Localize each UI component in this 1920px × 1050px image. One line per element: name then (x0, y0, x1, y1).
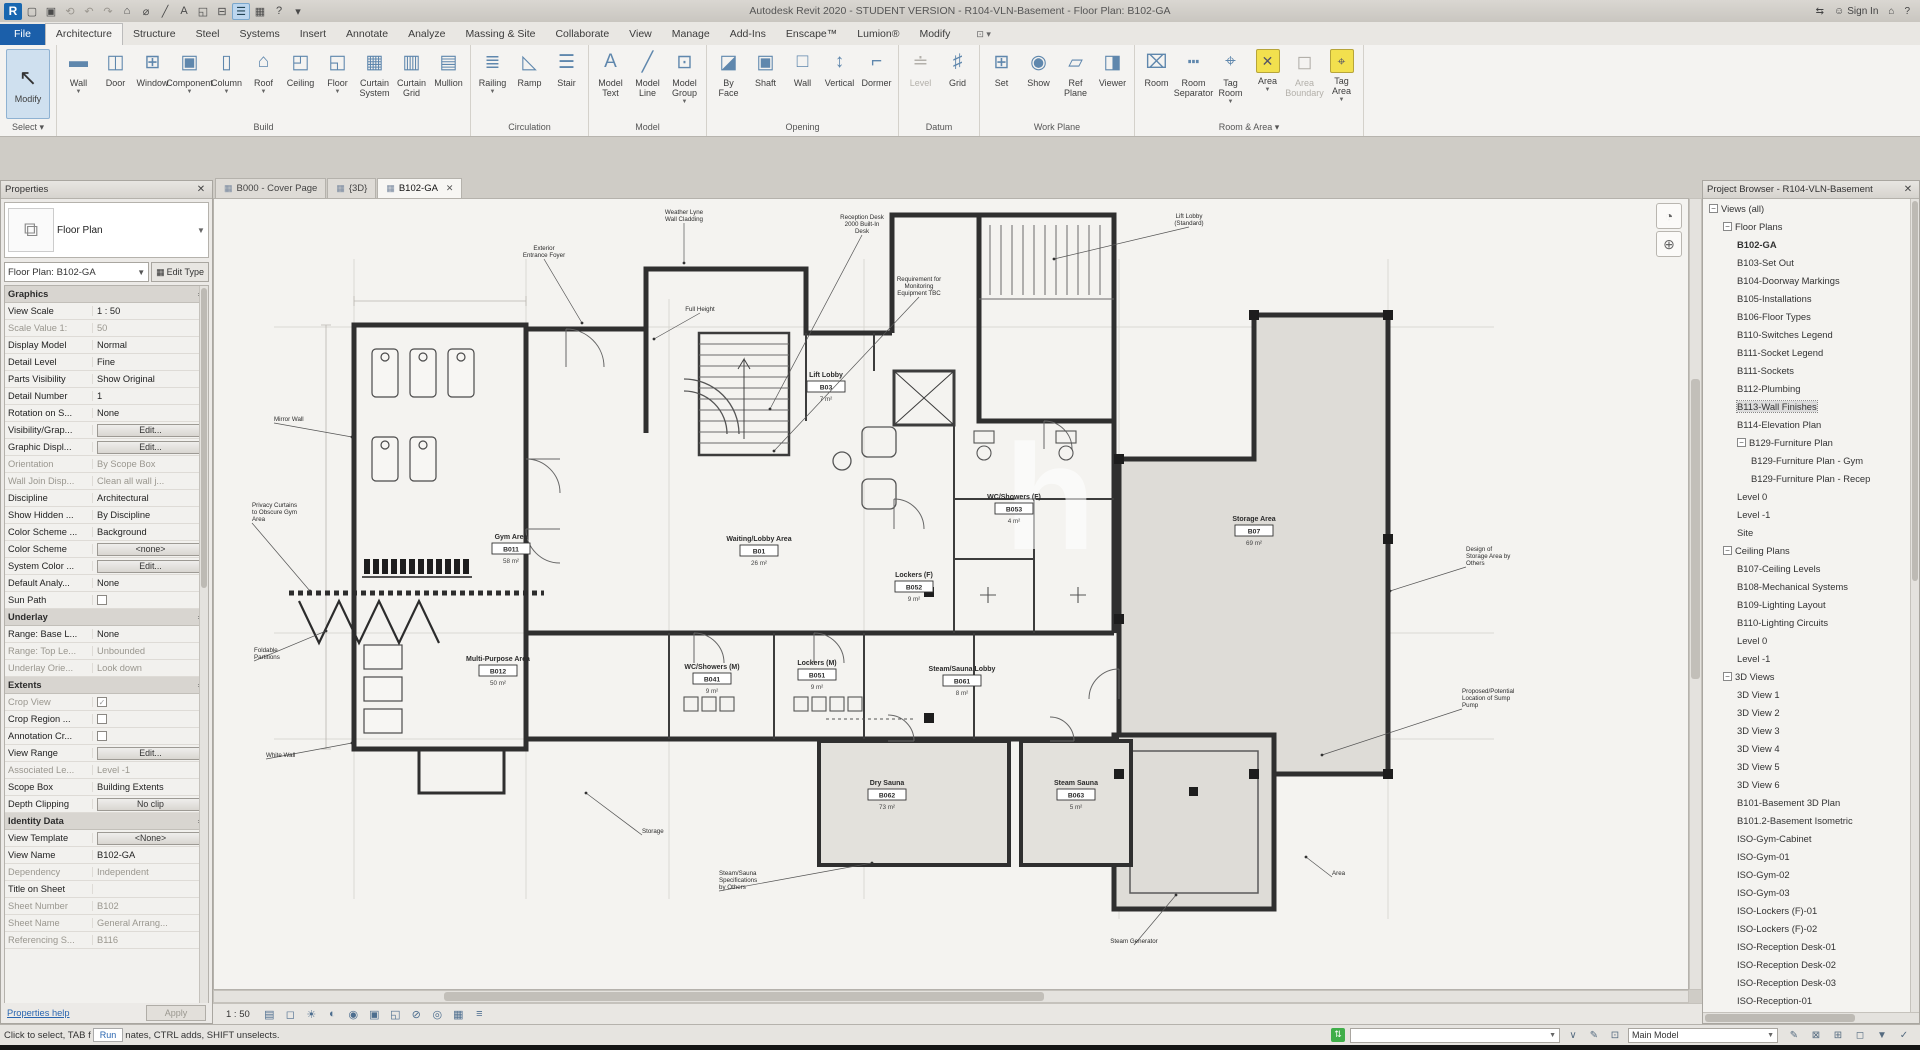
modify-button[interactable]: ↖Modify (6, 49, 50, 119)
show-work-plane-button[interactable]: ◉Show (1020, 47, 1057, 117)
property-row: Sheet NumberB102 (5, 898, 208, 915)
tree-item[interactable]: B101.2-Basement Isometric (1703, 811, 1919, 829)
tab-massing-site[interactable]: Massing & Site (455, 24, 545, 45)
tree-item[interactable]: ISO-Reception Desk-02 (1703, 955, 1919, 973)
window-icon: ⊞ (140, 49, 166, 75)
property-label: Scope Box (5, 782, 93, 792)
tree-item[interactable]: 3D View 1 (1703, 685, 1919, 703)
display-constraints-icon[interactable]: ◻ (1852, 1030, 1868, 1041)
editable-only-icon[interactable]: ✎ (1586, 1030, 1602, 1041)
property-value[interactable]: Architectural (93, 493, 208, 503)
property-row: Color Scheme ...Background (5, 524, 208, 541)
press-drag-icon[interactable]: ⊞ (1830, 1030, 1846, 1041)
grid-button[interactable]: ♯Grid (939, 47, 976, 117)
tree-item[interactable]: B114-Elevation Plan (1703, 415, 1919, 433)
ribbon-group-opening: ◪By Face▣Shaft□Wall↕Vertical⌐DormerOpeni… (707, 45, 899, 136)
property-value[interactable]: No clip (93, 797, 208, 812)
editable-only-icon[interactable]: ✎ (1786, 1030, 1802, 1041)
redo-icon[interactable]: ↷ (99, 3, 117, 20)
browser-scrollbar[interactable] (1910, 199, 1919, 1012)
tag-room-button[interactable]: ⌖Tag Room▼ (1212, 47, 1249, 117)
ribbon-group-work-plane: ⊞Set◉Show▱Ref Plane◨ViewerWork Plane (980, 45, 1135, 136)
measure-icon[interactable]: ⌀ (137, 3, 155, 20)
visual-style-icon[interactable]: ◻ (282, 1006, 299, 1022)
property-label: Sheet Number (5, 901, 93, 911)
switch-windows-icon[interactable]: ? (270, 3, 288, 20)
tab-collaborate[interactable]: Collaborate (545, 24, 619, 45)
edit-type-icon: ▦ (156, 267, 165, 278)
aligned-dimension-icon[interactable]: ╱ (156, 3, 174, 20)
annotation-text: Partitions (254, 654, 280, 661)
tree-item[interactable]: B105-Installations (1703, 289, 1919, 307)
sun-path-icon[interactable]: ☀ (303, 1006, 320, 1022)
property-row: Visibility/Grap...Edit... (5, 422, 208, 439)
chevron-down-icon: ▼ (335, 89, 341, 95)
collapse-icon[interactable]: − (1723, 672, 1732, 681)
rendering-icon[interactable]: ◉ (345, 1006, 362, 1022)
navigation-wheel-icon[interactable]: ◔ (1656, 203, 1682, 229)
ceiling-button[interactable]: ◰Ceiling (282, 47, 319, 117)
column-icon: ▯ (214, 49, 240, 75)
svg-text:Steam Sauna: Steam Sauna (1054, 780, 1098, 787)
tree-item[interactable]: B129-Furniture Plan - Recep (1703, 469, 1919, 487)
tree-item[interactable]: Level 0 (1703, 487, 1919, 505)
close-inactive-icon[interactable]: ▦ (251, 3, 269, 20)
property-value[interactable]: 1 : 50 (93, 306, 208, 316)
property-value[interactable]: Edit... (93, 746, 208, 761)
property-label: Orientation (5, 459, 93, 469)
property-value[interactable]: B102 (93, 901, 208, 911)
property-value[interactable]: Look down (93, 663, 208, 673)
chevron-down-icon: ▼ (261, 89, 267, 95)
type-name: Floor Plan (57, 225, 194, 236)
tree-item[interactable]: ISO-Gym-03 (1703, 883, 1919, 901)
property-label: Range: Base L... (5, 629, 93, 639)
tab-manage[interactable]: Manage (662, 24, 720, 45)
tree-item[interactable]: B110-Lighting Circuits (1703, 613, 1919, 631)
default-3d-view-icon[interactable]: ◱ (194, 3, 212, 20)
property-value[interactable]: By Scope Box (93, 459, 208, 469)
floor-plan-icon: ▦ (224, 183, 233, 194)
property-checkbox[interactable] (97, 731, 107, 741)
property-value[interactable]: 50 (93, 323, 208, 333)
view-tab-b000-cover-page[interactable]: ▦B000 - Cover Page (215, 178, 326, 198)
area-boundary-icon: ◻ (1292, 49, 1318, 75)
tree-item[interactable]: B112-Plumbing (1703, 379, 1919, 397)
opening-by-face-button[interactable]: ◪By Face (710, 47, 747, 117)
status-bar: Click to select, TAB f Run nates, CTRL a… (0, 1024, 1920, 1045)
worksets-status-icon[interactable]: ⇅ (1331, 1028, 1345, 1042)
worksharing-display-icon[interactable]: ▦ (450, 1006, 467, 1022)
stair-button[interactable]: ☰Stair (548, 47, 585, 117)
tree-item[interactable]: ISO-Gym-01 (1703, 847, 1919, 865)
room-separator-button[interactable]: ┅Room Separator (1175, 47, 1212, 117)
property-value[interactable]: Level -1 (93, 765, 208, 775)
section-header-graphics[interactable]: Graphics≙ (5, 286, 208, 303)
apply-button[interactable]: Apply (146, 1005, 206, 1021)
curtain-grid-button[interactable]: ▥Curtain Grid (393, 47, 430, 117)
tree-item[interactable]: 3D View 3 (1703, 721, 1919, 739)
set-work-plane-button[interactable]: ⊞Set (983, 47, 1020, 117)
tree-item[interactable]: −Views (all) (1703, 199, 1919, 217)
tree-item[interactable]: Level -1 (1703, 505, 1919, 523)
scale-button[interactable]: 1 : 50 (219, 1007, 257, 1022)
sync-icon[interactable]: ⟲ (61, 3, 79, 20)
properties-scrollbar[interactable] (199, 286, 208, 1003)
svg-text:B061: B061 (954, 679, 970, 686)
tab-view[interactable]: View (619, 24, 662, 45)
chevron-down-icon[interactable]: ▼ (194, 226, 208, 235)
undo-icon[interactable]: ↶ (80, 3, 98, 20)
tree-item[interactable]: B102-GA (1703, 235, 1919, 253)
edit-type-button[interactable]: ▦ Edit Type (151, 262, 209, 282)
svg-text:7 m²: 7 m² (820, 396, 833, 403)
exchange-icon[interactable]: ⇆ (1816, 6, 1824, 17)
railing-button[interactable]: ≣Railing▼ (474, 47, 511, 117)
tree-item[interactable]: B111-Socket Legend (1703, 343, 1919, 361)
ramp-button[interactable]: ◺Ramp (511, 47, 548, 117)
group-caption: Build (57, 120, 470, 136)
property-value[interactable]: Show Original (93, 374, 208, 384)
tag-area-button[interactable]: ⌖Tag Area▼ (1323, 47, 1360, 117)
wall-button[interactable]: ▬Wall▼ (60, 47, 97, 117)
property-value[interactable]: Building Extents (93, 782, 208, 792)
tree-item[interactable]: B110-Switches Legend (1703, 325, 1919, 343)
roof-button[interactable]: ⌂Roof▼ (245, 47, 282, 117)
property-label: View Name (5, 850, 93, 860)
room-separator-icon: ┅ (1181, 49, 1207, 75)
set-work-plane-icon: ⊞ (989, 49, 1015, 75)
tab-architecture[interactable]: Architecture (45, 23, 123, 45)
room-button[interactable]: ⌧Room (1138, 47, 1175, 117)
shadows-icon[interactable]: ◐ (324, 1006, 341, 1022)
type-selector[interactable]: ⧉ Floor Plan ▼ (4, 202, 209, 258)
curtain-grid-icon: ▥ (399, 49, 425, 75)
property-value[interactable]: ✓ (93, 697, 208, 707)
tree-item[interactable]: ISO-Reception-01 (1703, 991, 1919, 1009)
design-options-icon[interactable]: ⊡ (1607, 1030, 1623, 1041)
thin-lines-icon[interactable]: ☰ (232, 3, 250, 20)
tree-item[interactable]: Level 0 (1703, 631, 1919, 649)
collapse-icon[interactable]: − (1709, 204, 1718, 213)
svg-text:5 m²: 5 m² (1070, 804, 1083, 811)
property-value[interactable]: <none> (93, 542, 208, 557)
component-icon: ▣ (177, 49, 203, 75)
tree-item[interactable]: 3D View 4 (1703, 739, 1919, 757)
collapse-icon[interactable]: − (1723, 222, 1732, 231)
property-row: Associated Le...Level -1 (5, 762, 208, 779)
property-value[interactable]: None (93, 408, 208, 418)
tree-item[interactable]: ISO-Lockers (F)-01 (1703, 901, 1919, 919)
property-row: Referencing S...B116 (5, 932, 208, 949)
tree-item[interactable]: B103-Set Out (1703, 253, 1919, 271)
property-value[interactable]: 1 (93, 391, 208, 401)
property-row: DisciplineArchitectural (5, 490, 208, 507)
annotation-text: Design of (1466, 546, 1492, 553)
exclude-options-icon[interactable]: ⊠ (1808, 1030, 1824, 1041)
property-value[interactable]: General Arrang... (93, 918, 208, 928)
tree-item[interactable]: ISO-Gym-02 (1703, 865, 1919, 883)
properties-help-link[interactable]: Properties help (7, 1008, 70, 1018)
model-line-icon: ╱ (635, 49, 661, 75)
property-value[interactable] (93, 714, 208, 724)
property-row: Wall Join Disp...Clean all wall j... (5, 473, 208, 490)
print-icon[interactable]: ⌂ (118, 3, 136, 20)
floor-plan[interactable]: h Gym AreaB01158 m²Multi-Purpose AreaB01… (214, 199, 1689, 990)
property-edit-button[interactable]: <none> (97, 543, 204, 556)
close-icon[interactable]: ✕ (194, 184, 208, 195)
tree-item[interactable]: −Ceiling Plans (1703, 541, 1919, 559)
property-row: Graphic Displ...Edit... (5, 439, 208, 456)
property-value[interactable]: Edit... (93, 423, 208, 438)
mullion-button[interactable]: ▤Mullion (430, 47, 467, 117)
floor-button[interactable]: ◱Floor▼ (319, 47, 356, 117)
property-label: Visibility/Grap... (5, 425, 93, 435)
model-text-button[interactable]: AModel Text (592, 47, 629, 117)
customize-qat-icon[interactable]: ▾ (289, 3, 307, 20)
property-value[interactable]: B116 (93, 935, 208, 945)
property-row: OrientationBy Scope Box (5, 456, 208, 473)
property-row: Rotation on S...None (5, 405, 208, 422)
tag-room-icon: ⌖ (1218, 49, 1244, 75)
property-edit-button[interactable]: <None> (97, 832, 204, 845)
tab-lumion-[interactable]: Lumion® (847, 24, 909, 45)
tab-modify[interactable]: Modify (909, 24, 960, 45)
svg-text:Steam/Sauna Lobby: Steam/Sauna Lobby (929, 666, 996, 673)
tree-item[interactable]: −Floor Plans (1703, 217, 1919, 235)
tab-add-ins[interactable]: Add-Ins (720, 24, 776, 45)
view-control-bar: 1 : 50 ▤◻☀◐◉▣◱⊘◎▦≡ (213, 1003, 1702, 1024)
edit-type-label: Edit Type (167, 267, 204, 277)
property-value[interactable]: B102-GA (93, 850, 208, 860)
reveal-hidden-icon[interactable]: ◎ (429, 1006, 446, 1022)
door-button[interactable]: ◫Door (97, 47, 134, 117)
annotation-text: Full Height (685, 306, 715, 313)
canvas-horizontal-scrollbar[interactable] (213, 990, 1689, 1003)
property-checkbox[interactable] (97, 595, 107, 605)
property-value[interactable] (93, 595, 208, 605)
property-value[interactable]: <None> (93, 831, 208, 846)
select-caption[interactable]: Select ▾ (0, 120, 56, 136)
chevron-down-icon: ▼ (1339, 97, 1345, 103)
curtain-system-button[interactable]: ▦Curtain System (356, 47, 393, 117)
property-value[interactable]: Unbounded (93, 646, 208, 656)
tree-item[interactable]: 3D View 2 (1703, 703, 1919, 721)
close-icon[interactable]: ✕ (446, 183, 454, 194)
tree-item[interactable]: B106-Floor Types (1703, 307, 1919, 325)
tree-item[interactable]: Level -1 (1703, 649, 1919, 667)
property-label: View Template (5, 833, 93, 843)
run-badge: Run (93, 1028, 124, 1042)
property-value[interactable]: Independent (93, 867, 208, 877)
property-label: System Color ... (5, 561, 93, 571)
property-value[interactable]: Edit... (93, 559, 208, 574)
property-value[interactable] (93, 731, 208, 741)
section-header-identity-data[interactable]: Identity Data≙ (5, 813, 208, 830)
help-icon[interactable]: ? (1904, 6, 1910, 17)
tree-item[interactable]: ISO-Reception Desk-03 (1703, 973, 1919, 991)
tab-file[interactable]: File (0, 24, 45, 45)
save-icon[interactable]: ▣ (42, 3, 60, 20)
tree-item[interactable]: B111-Sockets (1703, 361, 1919, 379)
tree-item[interactable]: B108-Mechanical Systems (1703, 577, 1919, 595)
view-tab--3d-[interactable]: ▦{3D} (327, 178, 376, 198)
property-label: Wall Join Disp... (5, 476, 93, 486)
model-group-icon: ⊡ (672, 49, 698, 75)
chevron-down-icon: ▼ (187, 89, 193, 95)
column-button[interactable]: ▯Column▼ (208, 47, 245, 117)
annotation-text: Area (252, 516, 266, 523)
model-line-button[interactable]: ╱Model Line (629, 47, 666, 117)
property-row: Crop View✓ (5, 694, 208, 711)
text-icon[interactable]: A (175, 3, 193, 20)
select-toggle-icon[interactable]: ✓ (1896, 1030, 1912, 1041)
view-tab-b102-ga[interactable]: ▦B102-GA✕ (377, 178, 462, 198)
property-checkbox[interactable]: ✓ (97, 697, 107, 707)
tree-item[interactable]: B101-Basement 3D Plan (1703, 793, 1919, 811)
constraints-icon[interactable]: ≡ (471, 1006, 488, 1022)
tree-item[interactable]: B109-Lighting Layout (1703, 595, 1919, 613)
chevron-down-icon: ▼ (224, 89, 230, 95)
viewer-button[interactable]: ◨Viewer (1094, 47, 1131, 117)
tree-item[interactable]: B107-Ceiling Levels (1703, 559, 1919, 577)
tab-enscape-[interactable]: Enscape™ (776, 24, 847, 45)
ribbon-group-build: ▬Wall▼◫Door⊞Window▣Component▼▯Column▼⌂Ro… (57, 45, 471, 136)
tree-item[interactable]: B129-Furniture Plan - Gym (1703, 451, 1919, 469)
tab-steel[interactable]: Steel (186, 24, 230, 45)
section-icon[interactable]: ⊟ (213, 3, 231, 20)
property-row: Show Hidden ...By Discipline (5, 507, 208, 524)
tree-item[interactable]: Site (1703, 523, 1919, 541)
tab-annotate[interactable]: Annotate (336, 24, 398, 45)
instance-selector-label: Floor Plan: B102-GA (8, 267, 96, 278)
project-browser-header[interactable]: Project Browser - R104-VLN-Basement ✕ (1703, 181, 1919, 199)
tab-structure[interactable]: Structure (123, 24, 186, 45)
crop-region-icon[interactable]: ◱ (387, 1006, 404, 1022)
vertical-opening-button[interactable]: ↕Vertical (821, 47, 858, 117)
open-icon[interactable]: ▢ (23, 3, 41, 20)
worksets-dialog-icon[interactable]: ∨ (1565, 1030, 1581, 1041)
section-header-extents[interactable]: Extents≙ (5, 677, 208, 694)
annotation-text: Proposed/Potential (1462, 688, 1514, 695)
svg-text:9 m²: 9 m² (908, 596, 921, 603)
annotation-text: Reception Desk (840, 214, 885, 221)
property-value[interactable]: Background (93, 527, 208, 537)
property-checkbox[interactable] (97, 714, 107, 724)
browser-horizontal-scrollbar[interactable] (1703, 1012, 1919, 1023)
collapse-icon[interactable]: − (1737, 438, 1746, 447)
revit-logo[interactable]: R (4, 3, 22, 20)
tree-item[interactable]: 3D View 6 (1703, 775, 1919, 793)
component-button[interactable]: ▣Component▼ (171, 47, 208, 117)
section-header-underlay[interactable]: Underlay≙ (5, 609, 208, 626)
collapse-icon[interactable]: − (1723, 546, 1732, 555)
tag-area-icon: ⌖ (1330, 49, 1354, 73)
tree-item[interactable]: B113-Wall Finishes (1703, 397, 1919, 415)
property-row: Default Analy...None (5, 575, 208, 592)
property-row: Crop Region ... (5, 711, 208, 728)
tree-item[interactable]: 3D View 5 (1703, 757, 1919, 775)
drawing-area[interactable]: h Gym AreaB01158 m²Multi-Purpose AreaB01… (213, 198, 1689, 990)
property-edit-button[interactable]: Edit... (97, 747, 204, 760)
panel-toggle-icon[interactable]: ⊡ ▾ (966, 25, 1001, 45)
property-label: Graphic Displ... (5, 442, 93, 452)
design-option-select[interactable]: Main Model▼ (1628, 1028, 1778, 1043)
property-edit-button[interactable]: Edit... (97, 560, 204, 573)
area-button[interactable]: ✕Area▼ (1249, 47, 1286, 117)
tree-item[interactable]: ISO-Gym-Cabinet (1703, 829, 1919, 847)
property-value[interactable]: None (93, 578, 208, 588)
tree-item[interactable]: ISO-Reception Desk-01 (1703, 937, 1919, 955)
annotation-text: Pump (1462, 702, 1479, 709)
property-edit-button[interactable]: No clip (97, 798, 204, 811)
quick-access-toolbar: R▢▣⟲↶↷⌂⌀╱A◱⊟☰▦?▾ (0, 3, 307, 20)
property-label: Title on Sheet (5, 884, 93, 894)
canvas-vertical-scrollbar[interactable] (1689, 198, 1702, 990)
property-value[interactable]: Fine (93, 357, 208, 367)
properties-header[interactable]: Properties ✕ (1, 181, 212, 199)
temporary-hide-isolate-icon[interactable]: ⊘ (408, 1006, 425, 1022)
ribbon-group-circulation: ≣Railing▼◺Ramp☰StairCirculation (471, 45, 589, 136)
tree-item[interactable]: ISO-Lockers (F)-02 (1703, 919, 1919, 937)
title-bar: R▢▣⟲↶↷⌂⌀╱A◱⊟☰▦?▾ Autodesk Revit 2020 - S… (0, 0, 1920, 22)
annotation-text: Desk (855, 228, 870, 235)
tree-item[interactable]: −3D Views (1703, 667, 1919, 685)
tree-item[interactable]: B104-Doorway Markings (1703, 271, 1919, 289)
property-label: Parts Visibility (5, 374, 93, 384)
zoom-icon[interactable]: ⊕ (1656, 231, 1682, 257)
property-value[interactable]: Normal (93, 340, 208, 350)
property-value[interactable]: None (93, 629, 208, 639)
instance-selector[interactable]: Floor Plan: B102-GA ▼ (4, 262, 149, 282)
close-icon[interactable]: ✕ (1901, 184, 1915, 195)
ref-plane-button[interactable]: ▱Ref Plane (1057, 47, 1094, 117)
property-value[interactable]: By Discipline (93, 510, 208, 520)
stair-icon: ☰ (554, 49, 580, 75)
chevron-down-icon: ▼ (1265, 87, 1271, 93)
tab-insert[interactable]: Insert (290, 24, 336, 45)
property-value[interactable]: Edit... (93, 440, 208, 455)
svg-text:WC/Showers (F): WC/Showers (F) (987, 494, 1041, 501)
svg-text:Gym Area: Gym Area (495, 534, 528, 541)
wall-opening-button[interactable]: □Wall (784, 47, 821, 117)
property-row: Detail LevelFine (5, 354, 208, 371)
shaft-button[interactable]: ▣Shaft (747, 47, 784, 117)
filter-icon[interactable]: ▼ (1874, 1030, 1890, 1041)
dormer-button[interactable]: ⌐Dormer (858, 47, 895, 117)
sign-in-button[interactable]: ☺ Sign In (1834, 6, 1878, 17)
active-workset-select[interactable]: ▼ (1350, 1028, 1560, 1043)
tab-analyze[interactable]: Analyze (398, 24, 455, 45)
home-icon[interactable]: ⌂ (1888, 6, 1894, 17)
property-value[interactable]: Clean all wall j... (93, 476, 208, 486)
property-edit-button[interactable]: Edit... (97, 424, 204, 437)
model-group-button[interactable]: ⊡Model Group▼ (666, 47, 703, 117)
property-edit-button[interactable]: Edit... (97, 441, 204, 454)
detail-level-icon[interactable]: ▤ (261, 1006, 278, 1022)
group-caption: Opening (707, 120, 898, 136)
property-row: Parts VisibilityShow Original (5, 371, 208, 388)
tree-item[interactable]: −B129-Furniture Plan (1703, 433, 1919, 451)
crop-view-icon[interactable]: ▣ (366, 1006, 383, 1022)
infocenter: ⇆ ☺ Sign In ⌂ ? (1816, 6, 1920, 17)
property-label: Color Scheme ... (5, 527, 93, 537)
svg-text:B052: B052 (906, 585, 922, 592)
properties-grid: Graphics≙View Scale1 : 50Scale Value 1:5… (4, 285, 209, 1003)
svg-text:26 m²: 26 m² (751, 560, 767, 567)
property-label: Associated Le... (5, 765, 93, 775)
tab-systems[interactable]: Systems (230, 24, 290, 45)
